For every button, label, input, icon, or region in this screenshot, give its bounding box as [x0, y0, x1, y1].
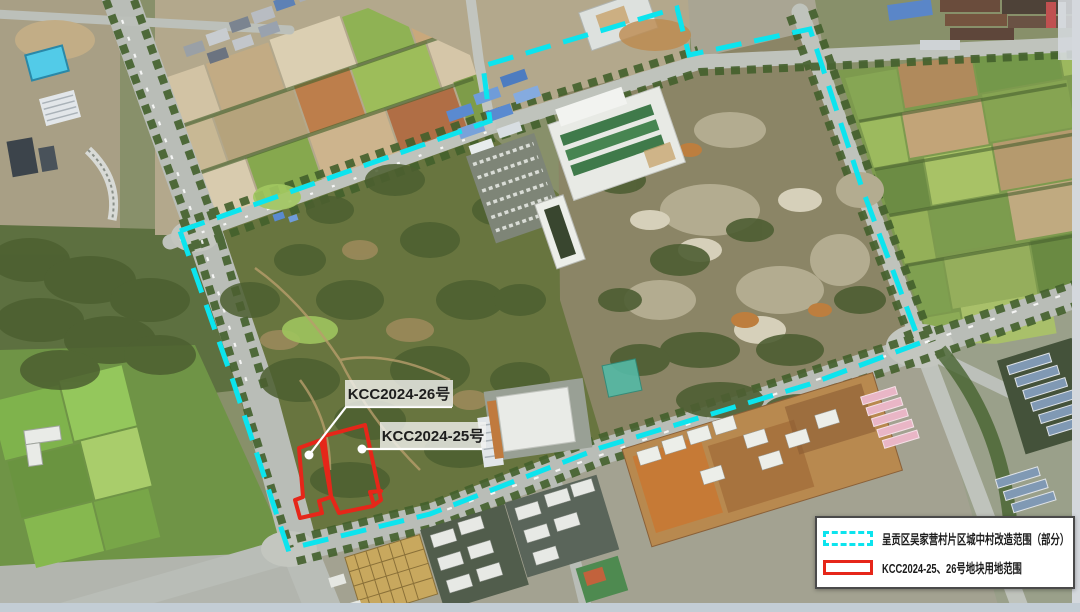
legend-label-boundary: 呈贡区吴家营村片区城中村改造范围（部分）: [882, 529, 1069, 548]
legend-swatch-cyan-dashed: [823, 531, 873, 546]
satellite-map-screenshot: KCC2024-26号 KCC2024-25号 呈贡区吴家营村片区城中村改造范围…: [0, 0, 1080, 612]
parcel-26-label: KCC2024-26号: [345, 380, 453, 407]
parcel-25-anchor-dot: [358, 445, 367, 454]
legend-row-parcel: KCC2024-25、26号地块用地范围: [823, 556, 1067, 578]
legend-swatch-red-solid: [823, 560, 873, 575]
legend: 呈贡区吴家营村片区城中村改造范围（部分） KCC2024-25、26号地块用地范…: [815, 516, 1075, 589]
legend-label-parcel: KCC2024-25、26号地块用地范围: [882, 558, 1022, 577]
parcel-26-anchor-dot: [305, 451, 314, 460]
legend-row-boundary: 呈贡区吴家营村片区城中村改造范围（部分）: [823, 527, 1067, 549]
parcel-25-label: KCC2024-25号: [380, 422, 486, 448]
